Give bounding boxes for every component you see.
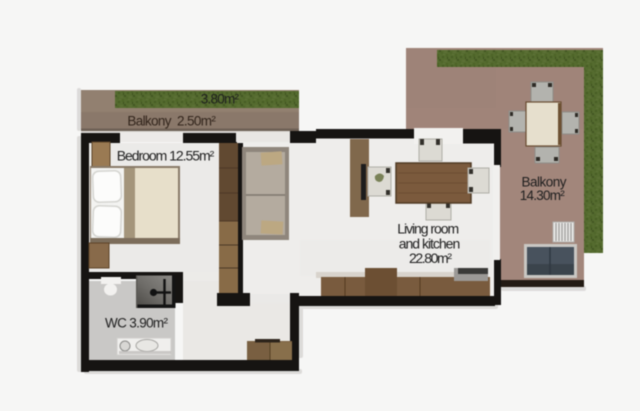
- svg-text:22.80m²: 22.80m²: [409, 250, 452, 266]
- svg-text:14.30m²: 14.30m²: [520, 188, 566, 203]
- svg-text:Living room: Living room: [397, 221, 459, 237]
- svg-text:Bedroom 12.55m²: Bedroom 12.55m²: [117, 147, 215, 163]
- svg-text:Balkony 2.50m²: Balkony 2.50m²: [127, 113, 216, 128]
- svg-text:3.80m²: 3.80m²: [201, 91, 240, 106]
- svg-text:WC 3.90m²: WC 3.90m²: [105, 316, 169, 331]
